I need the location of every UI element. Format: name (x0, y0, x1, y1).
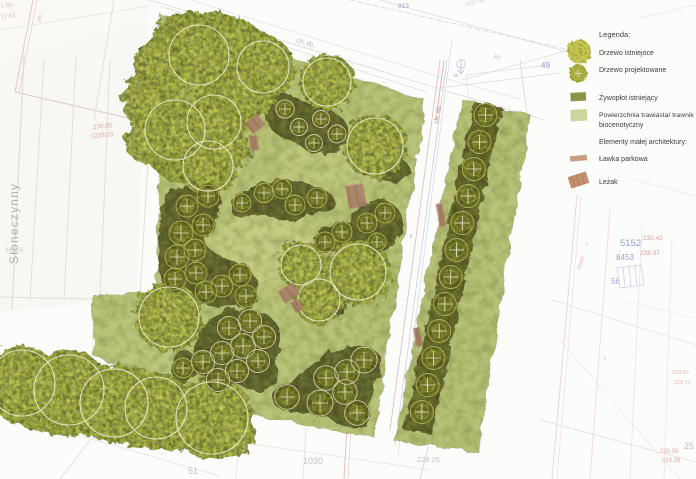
svg-text:Drzewo projektowane: Drzewo projektowane (599, 67, 666, 74)
svg-text:230.42: 230.42 (643, 235, 663, 242)
svg-text:Leżak: Leżak (599, 179, 618, 186)
svg-text:w: w (453, 73, 458, 79)
svg-text:Elementy małej architektury:: Elementy małej architektury: (599, 139, 687, 146)
svg-text:Ławka parkowa: Ławka parkowa (599, 156, 648, 163)
svg-text:25: 25 (684, 441, 694, 451)
svg-text:biocenotyczny: biocenotyczny (599, 122, 644, 129)
svg-text:Żywopłot istniejący: Żywopłot istniejący (599, 93, 658, 102)
svg-text:14315: 14315 (5, 247, 23, 254)
svg-text:51: 51 (188, 466, 198, 476)
svg-text:228.71: 228.71 (674, 380, 691, 386)
svg-text:49: 49 (541, 61, 550, 70)
svg-text:Drzewo istniejoce: Drzewo istniejoce (599, 50, 654, 57)
svg-text:8453: 8453 (616, 253, 634, 262)
svg-text:228.37: 228.37 (640, 250, 660, 257)
svg-text:230.02: 230.02 (672, 370, 689, 376)
svg-text:Powierzchnia trawiasta/ trawni: Powierzchnia trawiasta/ trawnik (599, 112, 694, 119)
svg-text:Legenda:: Legenda: (599, 30, 630, 39)
svg-text:5152: 5152 (620, 238, 641, 249)
svg-text:913: 913 (398, 3, 409, 10)
svg-text:228 26: 228 26 (417, 455, 440, 464)
svg-text:230.06: 230.06 (660, 449, 679, 455)
svg-text:k: k (410, 234, 413, 240)
svg-text:1030: 1030 (303, 456, 323, 466)
svg-text:229.38: 229.38 (662, 458, 681, 464)
